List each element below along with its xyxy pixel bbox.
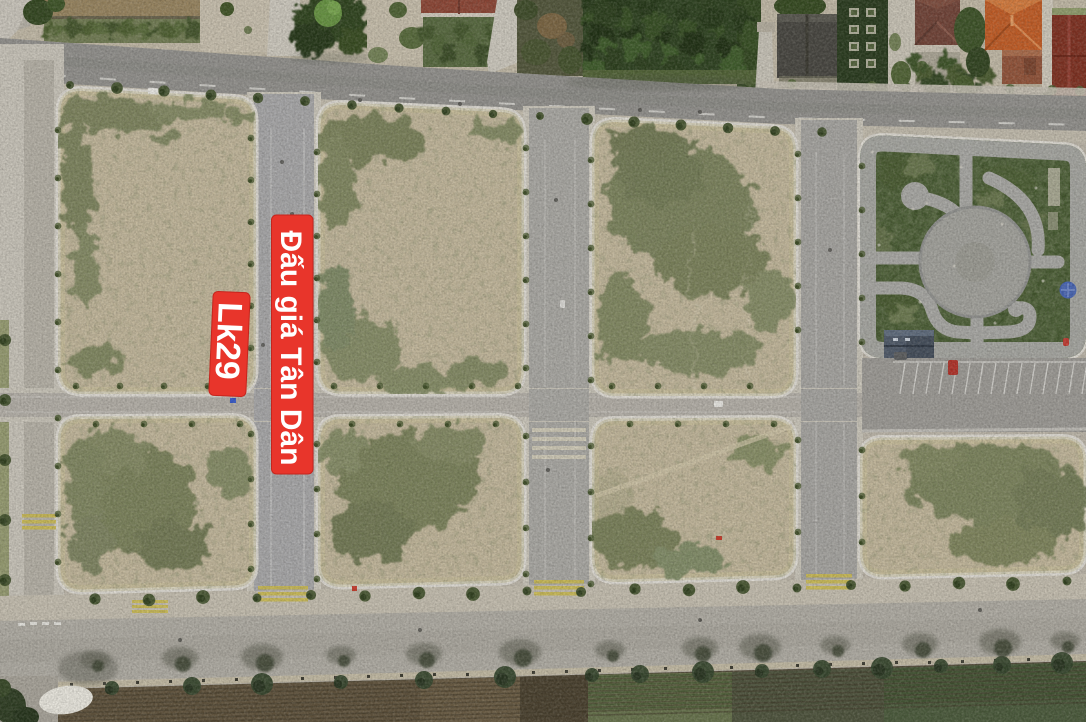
svg-text:Lk29: Lk29	[207, 301, 248, 380]
svg-text:Đấu giá Tân Dân: Đấu giá Tân Dân	[274, 230, 307, 465]
